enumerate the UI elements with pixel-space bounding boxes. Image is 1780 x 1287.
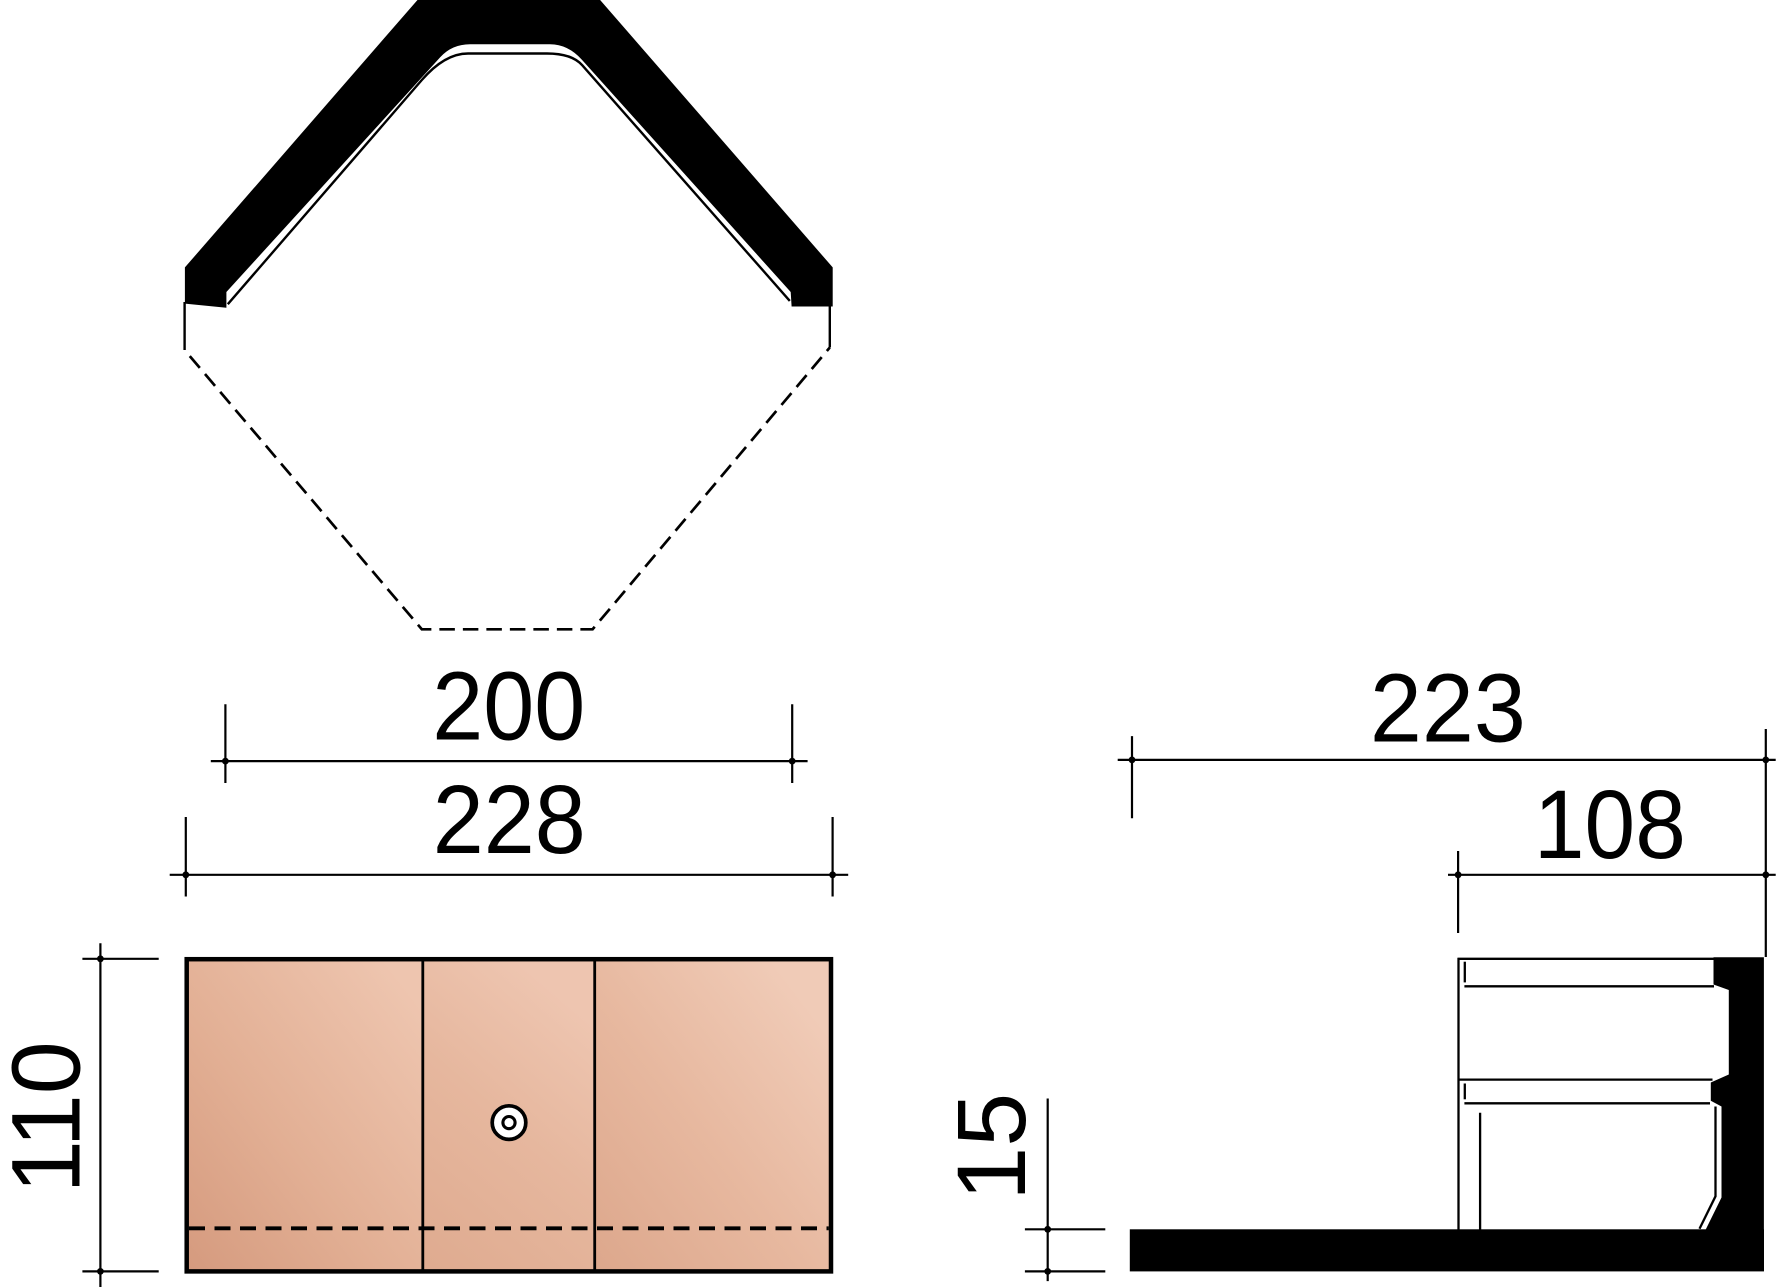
svg-text:200: 200 xyxy=(432,652,585,761)
svg-text:108: 108 xyxy=(1534,770,1686,879)
svg-text:228: 228 xyxy=(433,765,586,874)
svg-text:15: 15 xyxy=(937,1093,1046,1201)
svg-text:110: 110 xyxy=(0,1041,101,1193)
svg-text:223: 223 xyxy=(1370,653,1526,762)
